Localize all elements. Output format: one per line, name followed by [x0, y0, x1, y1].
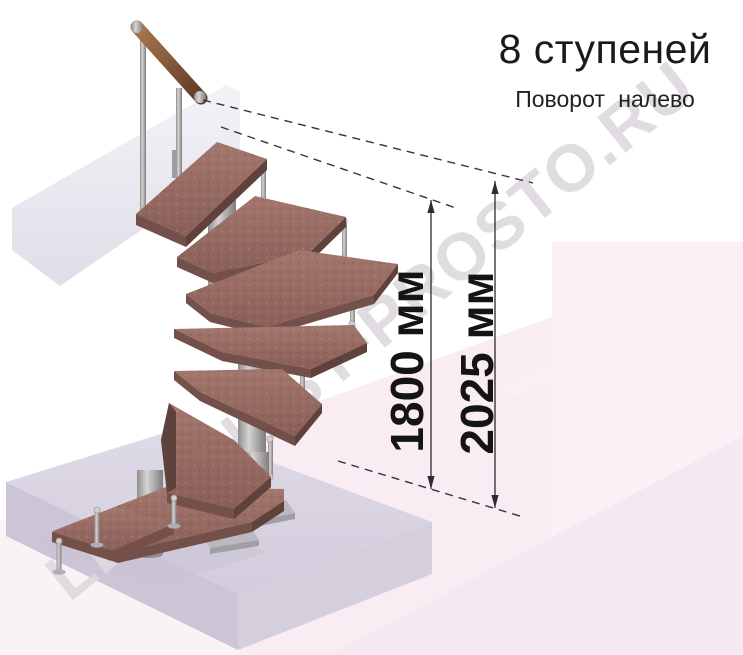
handrail-cap — [194, 91, 206, 103]
handrail-cap — [131, 21, 143, 33]
dimension-label-2025: 2025 мм — [454, 263, 500, 463]
handrail — [137, 27, 201, 98]
staircase-diagram: LESTNITSY-PROSTO.RU — [0, 0, 743, 655]
page-subtitle: Поворот налево — [455, 86, 743, 113]
page-title: 8 ступеней — [455, 26, 743, 73]
baluster — [140, 28, 146, 218]
dimension-label-1800: 1800 мм — [384, 261, 430, 461]
